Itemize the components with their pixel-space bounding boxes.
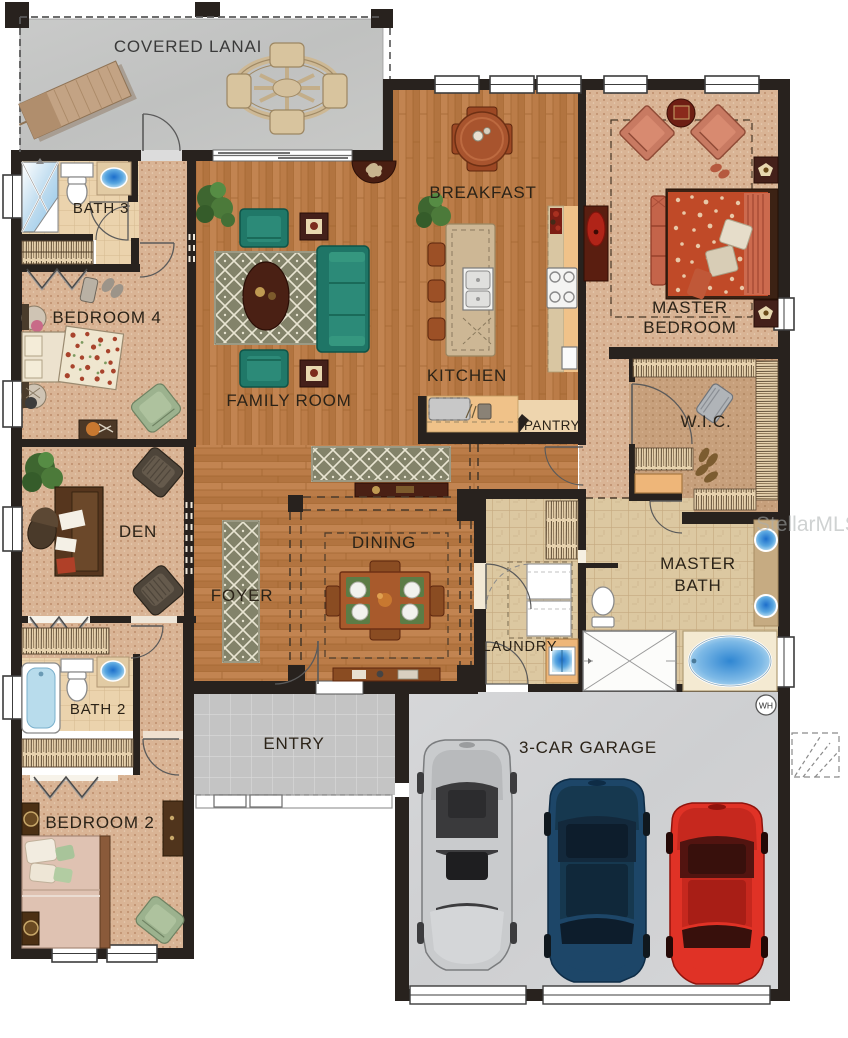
svg-text:BREAKFAST: BREAKFAST <box>429 183 536 202</box>
svg-text:DEN: DEN <box>119 522 157 541</box>
svg-text:StellarMLS: StellarMLS <box>756 513 848 536</box>
svg-text:LAUNDRY: LAUNDRY <box>483 639 558 655</box>
svg-text:3-CAR GARAGE: 3-CAR GARAGE <box>519 738 657 757</box>
svg-text:BEDROOM 4: BEDROOM 4 <box>52 308 161 327</box>
svg-text:BATH 3: BATH 3 <box>73 200 129 217</box>
svg-text:MASTER: MASTER <box>652 298 728 317</box>
svg-text:BATH: BATH <box>674 576 721 595</box>
svg-text:MASTER: MASTER <box>660 554 736 573</box>
svg-text:DINING: DINING <box>352 533 416 552</box>
svg-text:COVERED LANAI: COVERED LANAI <box>114 37 262 56</box>
svg-text:FOYER: FOYER <box>211 586 274 605</box>
svg-text:PANTRY: PANTRY <box>524 418 580 433</box>
svg-text:W.I.C.: W.I.C. <box>680 412 731 431</box>
svg-text:BATH 2: BATH 2 <box>70 701 126 718</box>
svg-text:KITCHEN: KITCHEN <box>427 366 507 385</box>
svg-text:BEDROOM: BEDROOM <box>643 318 736 337</box>
svg-text:FAMILY ROOM: FAMILY ROOM <box>226 391 351 410</box>
svg-text:WH: WH <box>759 701 773 711</box>
svg-text:ENTRY: ENTRY <box>263 734 324 753</box>
svg-text:BEDROOM 2: BEDROOM 2 <box>45 813 154 832</box>
